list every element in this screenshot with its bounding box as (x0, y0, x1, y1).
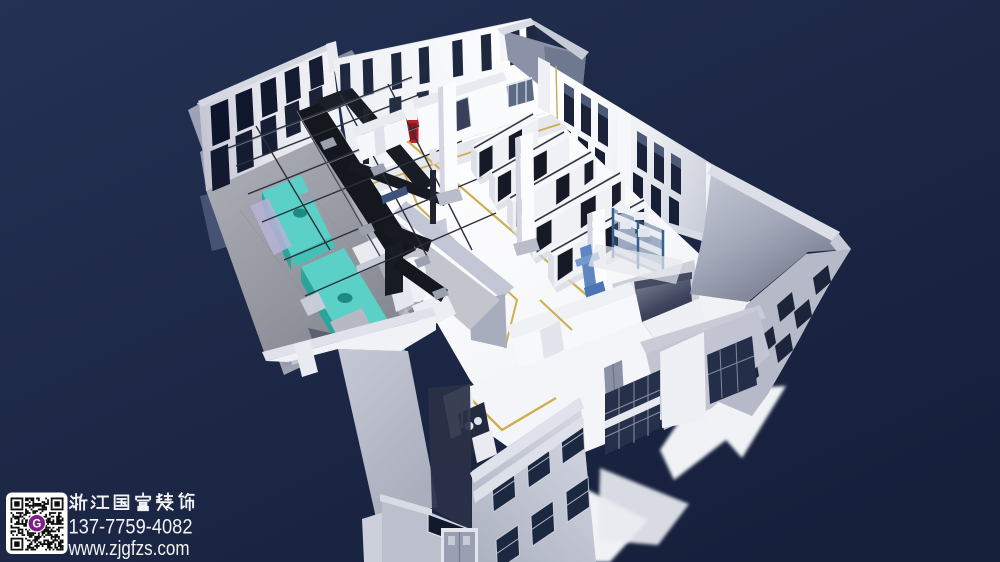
svg-text:www.zjgfzs.com: www.zjgfzs.com (68, 538, 190, 560)
svg-text:G: G (32, 519, 41, 531)
svg-text:137-7759-4082: 137-7759-4082 (69, 515, 193, 539)
